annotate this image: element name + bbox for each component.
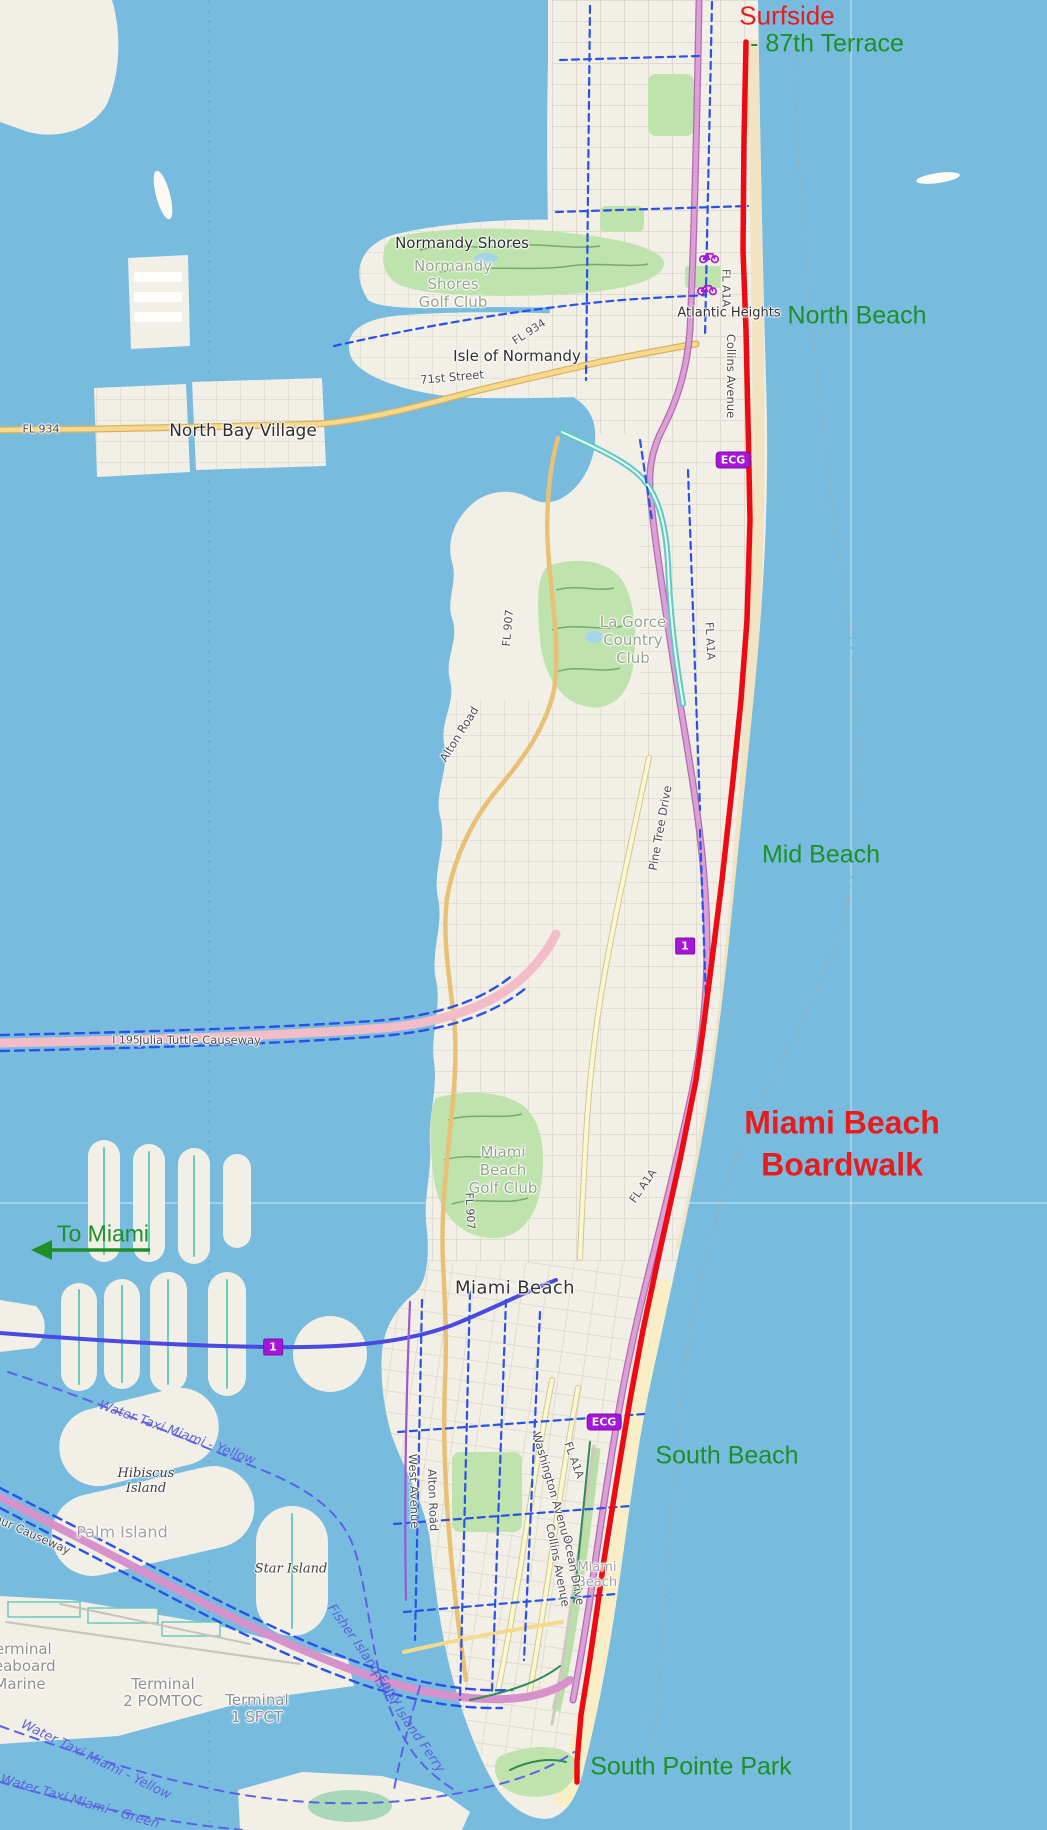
map-base [0,0,1047,1830]
map-canvas: Surfside- 87th TerraceNorth BeachMid Bea… [0,0,1047,1830]
